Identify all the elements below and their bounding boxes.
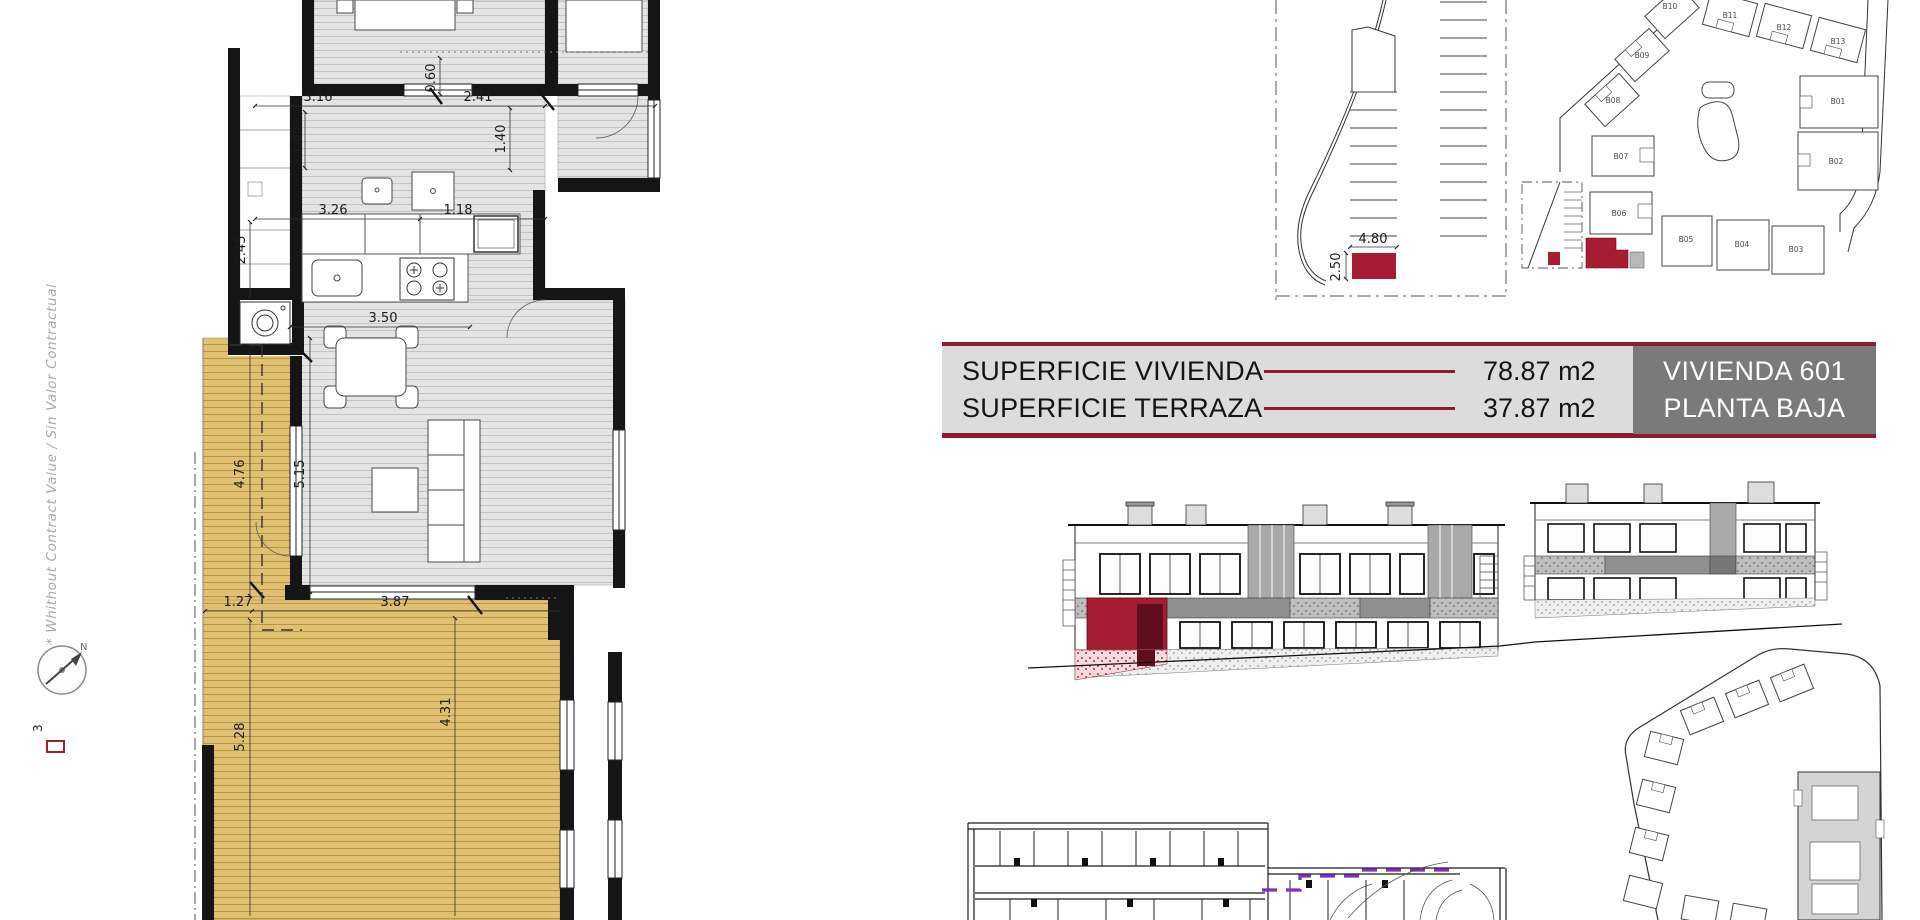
dim-label: 1.40 xyxy=(494,125,509,154)
area-value: 37.87 m2 xyxy=(1483,393,1633,424)
area-label: SUPERFICIE VIVIENDA xyxy=(962,356,1264,387)
dim-label: 3.26 xyxy=(319,203,348,218)
dim-label: 4.31 xyxy=(439,698,454,727)
building-label: B04 xyxy=(1735,240,1750,249)
dim-label: 2.45 xyxy=(234,236,249,265)
dim-label: 1.27 xyxy=(224,595,253,610)
elevation-right-building xyxy=(1524,482,1827,618)
dim-label: 5.15 xyxy=(293,460,308,489)
door-jambs xyxy=(1014,858,1388,907)
site-highlight-unit xyxy=(1586,238,1628,268)
parking-structure xyxy=(1352,27,1395,92)
building-label: B01 xyxy=(1831,97,1846,106)
leader-line xyxy=(1264,407,1455,410)
building-label: B12 xyxy=(1777,23,1792,32)
site-neighbor-unit xyxy=(1630,252,1644,268)
lower-site-buildings xyxy=(1623,664,1813,920)
building-label: B08 xyxy=(1606,96,1621,105)
area-label: SUPERFICIE TERRAZA xyxy=(962,393,1264,424)
garage-walls xyxy=(968,823,1506,920)
dim-label: 1.18 xyxy=(444,203,473,218)
dim-label: 5.28 xyxy=(233,723,248,752)
building-label: B11 xyxy=(1723,11,1738,20)
site-parking-strip xyxy=(1522,182,1582,268)
title-block: SUPERFICIE VIVIENDA 78.87 m2 SUPERFICIE … xyxy=(942,342,1876,438)
building-label: B06 xyxy=(1612,209,1627,218)
unit-panel: VIVIENDA 601 PLANTA BAJA xyxy=(1633,346,1876,434)
disclaimer-note: * Whithout Contract Value / Sin Valor Co… xyxy=(44,305,60,645)
site-plan-overview: B01 B02 B03 B04 B05 B06 B07 B08 B09 B10 … xyxy=(1522,0,1888,274)
apartment-floor-plan xyxy=(195,0,660,920)
building-label: B13 xyxy=(1831,37,1846,46)
sofa xyxy=(428,420,480,562)
drawing-sheet: 3.16 2.41 0.60 1.55 1.40 3.26 1.18 2.45 … xyxy=(0,0,1920,920)
north-compass: N xyxy=(38,642,87,694)
parking-width-dim: 4.80 xyxy=(1359,232,1388,247)
dim-label: 3.87 xyxy=(381,595,410,610)
site-parking-highlight xyxy=(1548,252,1560,265)
site-plan-lower xyxy=(1623,649,1884,920)
garage-plan xyxy=(968,823,1506,920)
parking-depth-dim: 2.50 xyxy=(1329,253,1344,282)
building-label: B03 xyxy=(1789,245,1804,254)
building-label: B07 xyxy=(1614,152,1629,161)
elevation-drawing xyxy=(1028,482,1842,680)
unit-floor: PLANTA BAJA xyxy=(1663,393,1845,424)
sheet-number: 3 xyxy=(31,724,45,732)
kitchen-island xyxy=(372,468,418,512)
dim-label: 1.55 xyxy=(289,126,304,155)
dining-table xyxy=(324,326,418,408)
area-row-vivienda: SUPERFICIE VIVIENDA 78.87 m2 xyxy=(962,353,1633,390)
area-row-terraza: SUPERFICIE TERRAZA 37.87 m2 xyxy=(962,390,1633,427)
closet-column xyxy=(240,96,290,300)
stove-hob xyxy=(400,258,454,300)
chimneys xyxy=(1126,502,1414,525)
building-label: B09 xyxy=(1635,51,1650,60)
drawing-canvas: 3.16 2.41 0.60 1.55 1.40 3.26 1.18 2.45 … xyxy=(0,0,1920,920)
dim-label: 3.16 xyxy=(304,90,333,105)
dim-label: 4.76 xyxy=(233,460,248,489)
building-label: B10 xyxy=(1663,2,1678,11)
dim-label: 2.41 xyxy=(464,90,493,105)
parking-highlight-stall xyxy=(1352,253,1396,279)
washing-machine xyxy=(240,302,290,344)
parking-plan: 4.80 2.50 xyxy=(1276,0,1506,300)
north-label: N xyxy=(80,642,87,653)
building-label: B05 xyxy=(1679,235,1694,244)
dim-label: 0.60 xyxy=(424,64,439,93)
dim-label: 3.50 xyxy=(369,311,398,326)
pool xyxy=(1698,82,1739,161)
area-value: 78.87 m2 xyxy=(1483,356,1633,387)
areas-panel: SUPERFICIE VIVIENDA 78.87 m2 SUPERFICIE … xyxy=(942,346,1633,434)
leader-line xyxy=(1264,370,1455,373)
unit-name: VIVIENDA 601 xyxy=(1663,356,1846,387)
lower-site-gray-building xyxy=(1794,772,1884,920)
kitchen-sink xyxy=(312,260,362,296)
bedroom-floor xyxy=(240,0,302,84)
elevation-highlight-unit xyxy=(1087,598,1167,650)
sheet-corner-mark xyxy=(47,741,64,752)
garage-partitions xyxy=(1000,831,1404,920)
building-label: B02 xyxy=(1829,157,1844,166)
elevation-left-building xyxy=(1063,502,1505,680)
